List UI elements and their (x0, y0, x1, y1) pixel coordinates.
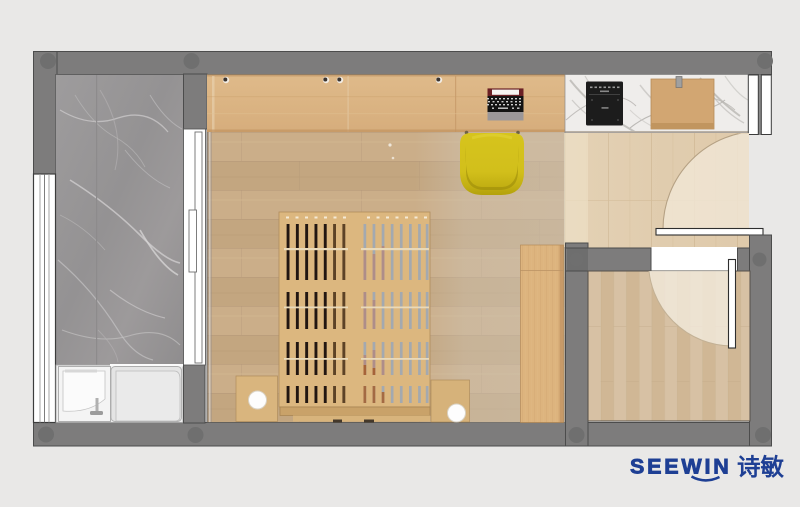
svg-text:诗敏: 诗敏 (737, 454, 785, 480)
svg-text:SEEWIN: SEEWIN (630, 455, 732, 479)
